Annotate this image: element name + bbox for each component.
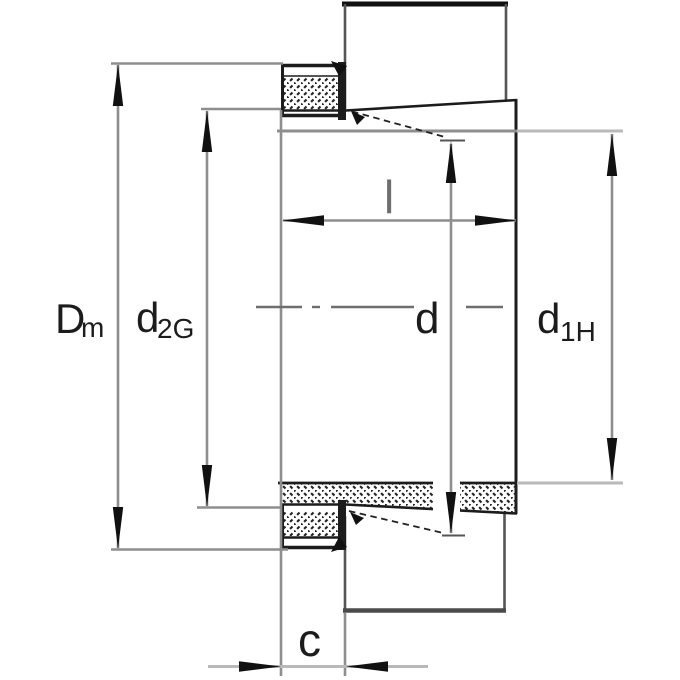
- adapter-sleeve-diagram: D m d 2G l d d 1H c: [0, 0, 680, 680]
- label-d2g-main: d: [136, 294, 159, 341]
- locknut-bottom-hatch: [284, 511, 338, 536]
- label-c: c: [298, 614, 321, 666]
- label-l: l: [384, 171, 394, 223]
- locknut-top-hatch: [284, 77, 338, 111]
- label-d1h-sub: 1H: [560, 316, 596, 347]
- label-dm-sub: m: [81, 312, 104, 343]
- technical-drawing-canvas: D m d 2G l d d 1H c: [0, 0, 680, 680]
- label-d: d: [415, 294, 439, 343]
- label-d2g-sub: 2G: [157, 313, 194, 344]
- label-d1h-main: d: [537, 295, 560, 342]
